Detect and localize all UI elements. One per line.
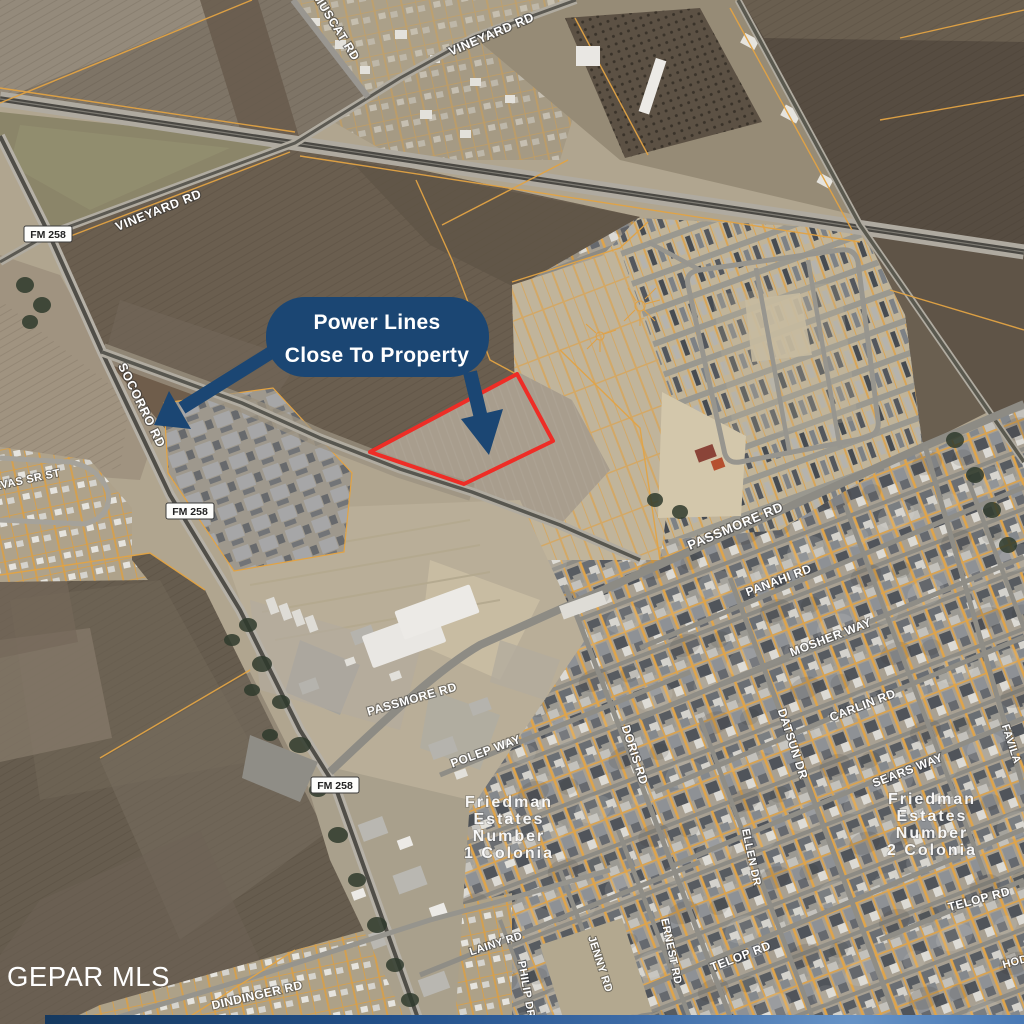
svg-text:Number: Number <box>896 825 968 842</box>
svg-text:Estates: Estates <box>897 808 968 825</box>
svg-text:FM 258: FM 258 <box>172 506 208 518</box>
svg-text:Power Lines: Power Lines <box>313 311 440 334</box>
svg-text:Number: Number <box>473 828 545 845</box>
svg-text:1 Colonia: 1 Colonia <box>464 845 554 862</box>
svg-text:Estates: Estates <box>474 811 545 828</box>
svg-text:Friedman: Friedman <box>888 791 976 808</box>
svg-text:GEPAR MLS: GEPAR MLS <box>7 961 170 992</box>
svg-text:Close To Property: Close To Property <box>285 344 469 367</box>
svg-text:2 Colonia: 2 Colonia <box>887 842 977 859</box>
svg-text:FM 258: FM 258 <box>317 780 353 792</box>
svg-text:FM 258: FM 258 <box>30 229 66 241</box>
svg-text:Friedman: Friedman <box>465 794 553 811</box>
